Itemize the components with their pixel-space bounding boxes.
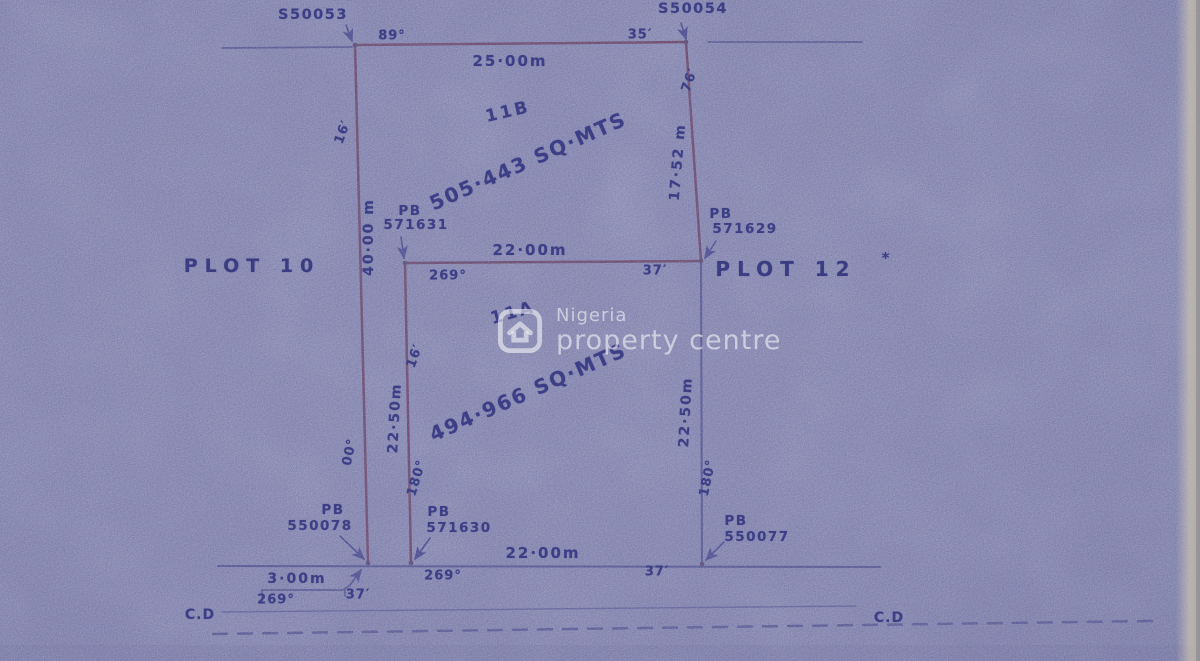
plot-12-label: PLOT 12	[715, 257, 856, 281]
beacon-label-550078: 550078	[287, 518, 352, 534]
bearing-notch-right: 37′	[346, 588, 371, 603]
dim-top-side: 25·00m	[472, 52, 547, 70]
beacon-pb-mid-right: PB	[709, 206, 732, 222]
property-centre-logo-icon	[497, 308, 543, 354]
dim-bottom-side: 22·00m	[505, 544, 580, 562]
bearing-notch-left: 269°	[257, 593, 295, 608]
bearing-mid-left: 269°	[429, 269, 467, 284]
watermark: Nigeria property centre	[497, 305, 781, 356]
bearing-mid-right: 37′	[643, 264, 668, 279]
plot-12-mark: *	[882, 249, 891, 267]
beacon-label-571631: 571631	[383, 217, 448, 233]
beacon-label-s50054: S50054	[658, 1, 728, 17]
datum-label-left: C.D	[185, 607, 215, 623]
dim-left-side: 40·00 m	[361, 198, 377, 276]
beacon-pb-bottom-mid: PB	[427, 504, 450, 520]
watermark-tagline: property centre	[556, 325, 781, 356]
beacon-label-571629: 571629	[712, 221, 777, 237]
survey-plan-scan: PB S50053 S50054 89° 35′ 25·00m 16′ 40·0…	[0, 0, 1200, 661]
watermark-brand: Nigeria	[556, 305, 781, 326]
bearing-top-right: 35′	[628, 28, 653, 43]
beacon-pb-bottom-left: PB	[321, 502, 344, 518]
dim-notch: 3·00m	[267, 571, 326, 587]
dim-mid-side: 22·00m	[492, 241, 567, 259]
bearing-top-left: 89°	[378, 29, 406, 44]
beacon-label-550077: 550077	[724, 529, 789, 545]
beacon-label-s50053: S50053	[278, 7, 348, 23]
beacon-label-571630: 571630	[426, 520, 491, 536]
beacon-pb-bottom-right: PB	[724, 513, 747, 529]
bearing-bottom-right: 37′	[645, 565, 670, 580]
plot-10-label: PLOT 10	[184, 255, 321, 277]
datum-label-right: C.D	[874, 610, 904, 626]
beacon-pb-top-left: PB	[333, 0, 356, 4]
bearing-bottom-left: 269°	[424, 569, 462, 584]
